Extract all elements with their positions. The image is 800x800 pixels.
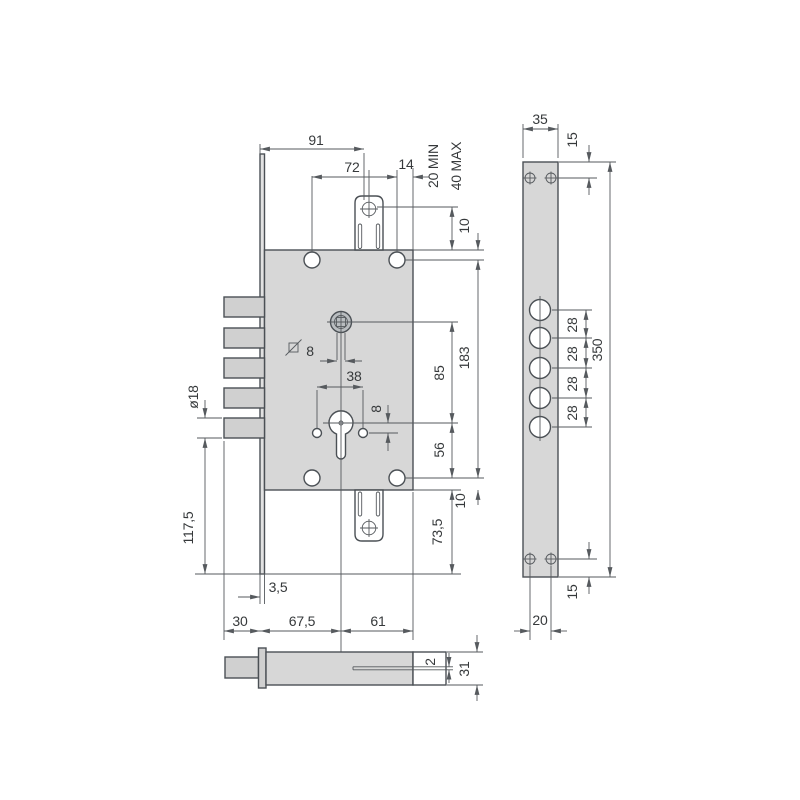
- lock-dimension-drawing: 91 72 14 20 MIN 40 MAX 10 8 38 8 85 183 …: [0, 0, 800, 800]
- bottom-view-bolt: [225, 657, 259, 678]
- dim-3-5: 3,5: [269, 579, 288, 595]
- fixing-hole-top-right: [389, 252, 405, 268]
- dim-35: 35: [532, 111, 548, 127]
- cylinder-screw-hole-right: [359, 429, 368, 438]
- dim-square-8: 8: [306, 343, 314, 359]
- bottom-view: [225, 648, 446, 688]
- dim-20: 20: [532, 612, 548, 628]
- bottom-view-body: [266, 652, 413, 685]
- dim-56: 56: [431, 442, 447, 458]
- dim-10-top: 10: [456, 218, 472, 234]
- dim-67-5: 67,5: [289, 613, 316, 629]
- dim-14: 14: [398, 156, 414, 172]
- cylinder-screw-hole-left: [313, 429, 322, 438]
- deadbolt-2: [224, 328, 265, 348]
- deadbolt-4: [224, 388, 265, 408]
- side-view: [523, 162, 558, 577]
- fixing-hole-bottom-right: [389, 470, 405, 486]
- dim-38: 38: [346, 368, 362, 384]
- dim-28-3: 28: [564, 376, 580, 392]
- dim-85: 85: [431, 365, 447, 381]
- dim-28-2: 28: [564, 346, 580, 362]
- dim-350: 350: [589, 338, 605, 361]
- bottom-view-faceplate: [259, 648, 267, 688]
- dim-61: 61: [370, 613, 386, 629]
- dim-diameter-18: ø18: [185, 385, 201, 409]
- dim-117-5: 117,5: [180, 511, 196, 544]
- plate-bolt-holes: [530, 296, 551, 441]
- dim-28-1: 28: [564, 317, 580, 333]
- front-view: [224, 154, 413, 574]
- fixing-hole-bottom-left: [304, 470, 320, 486]
- dim-20-min: 20 MIN: [425, 144, 441, 188]
- deadbolt-3: [224, 358, 265, 378]
- dim-72: 72: [344, 159, 360, 175]
- dim-15-bottom: 15: [564, 584, 580, 600]
- dim-91: 91: [308, 132, 324, 148]
- dim-15-top: 15: [564, 132, 580, 148]
- bottom-view-cover: [413, 652, 446, 685]
- dim-28-4: 28: [564, 405, 580, 421]
- technical-drawing-page: 91 72 14 20 MIN 40 MAX 10 8 38 8 85 183 …: [0, 0, 800, 800]
- deadbolt-1: [224, 297, 265, 317]
- deadbolt-5: [224, 418, 265, 438]
- dim-183: 183: [456, 346, 472, 369]
- dim-30: 30: [232, 613, 248, 629]
- dim-31: 31: [456, 661, 472, 677]
- fixing-hole-top-left: [304, 252, 320, 268]
- dim-2: 2: [422, 658, 438, 666]
- dim-8-cylinder: 8: [368, 405, 384, 413]
- dim-40-max: 40 MAX: [448, 141, 464, 190]
- dim-73-5: 73,5: [429, 518, 445, 545]
- dim-10-bottom: 10: [452, 493, 468, 509]
